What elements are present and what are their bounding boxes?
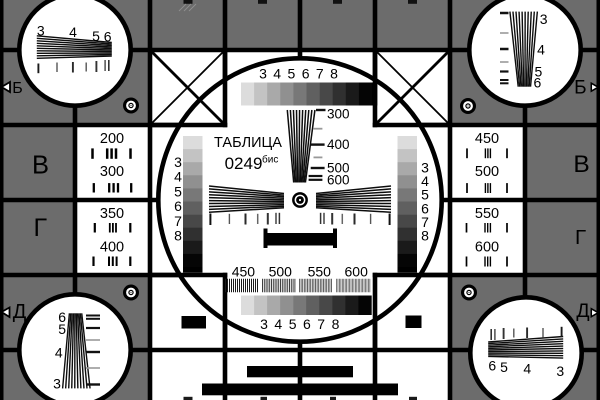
- svg-text:В: В: [573, 151, 589, 178]
- svg-text:550: 550: [308, 264, 332, 280]
- svg-text:7: 7: [174, 213, 182, 229]
- svg-text:4: 4: [55, 344, 63, 360]
- svg-text:6: 6: [534, 75, 542, 91]
- svg-text:3: 3: [53, 376, 61, 392]
- svg-text:Г: Г: [575, 226, 586, 249]
- svg-text:6: 6: [488, 358, 496, 374]
- svg-text:600: 600: [345, 264, 369, 280]
- svg-text:5: 5: [58, 321, 66, 337]
- svg-text:8: 8: [421, 228, 429, 244]
- svg-text:Д: Д: [13, 301, 27, 323]
- svg-text:450: 450: [475, 131, 499, 147]
- svg-text:3: 3: [556, 363, 564, 379]
- svg-text:5: 5: [500, 359, 508, 375]
- svg-text:Д: Д: [576, 300, 589, 322]
- svg-text:0249: 0249: [225, 154, 263, 173]
- svg-text:600: 600: [475, 240, 499, 256]
- svg-text:350: 350: [100, 206, 124, 222]
- svg-text:5: 5: [174, 183, 182, 199]
- svg-text:400: 400: [100, 240, 124, 256]
- svg-text:8: 8: [332, 316, 340, 332]
- svg-text:4: 4: [274, 316, 282, 332]
- svg-text:450: 450: [232, 264, 256, 280]
- svg-text:8: 8: [330, 66, 338, 82]
- svg-text:550: 550: [475, 206, 499, 222]
- svg-text:4: 4: [537, 42, 545, 58]
- svg-text:3: 3: [260, 316, 268, 332]
- svg-text:6: 6: [104, 29, 112, 45]
- svg-text:400: 400: [327, 137, 350, 152]
- svg-text:5: 5: [289, 316, 297, 332]
- svg-text:ТАБЛИЦА: ТАБЛИЦА: [214, 135, 282, 151]
- svg-text:6: 6: [303, 316, 311, 332]
- svg-text:В: В: [32, 152, 49, 180]
- svg-text:6: 6: [302, 66, 310, 82]
- svg-text:8: 8: [174, 228, 182, 244]
- svg-text:4: 4: [174, 169, 182, 185]
- svg-text:500: 500: [269, 264, 293, 280]
- svg-text:300: 300: [327, 107, 350, 122]
- svg-text:3: 3: [174, 154, 182, 170]
- svg-text:5: 5: [288, 66, 296, 82]
- svg-text:4: 4: [273, 66, 281, 82]
- svg-text:4: 4: [69, 24, 77, 40]
- svg-text:300: 300: [100, 164, 124, 180]
- svg-text:7: 7: [316, 66, 324, 82]
- svg-text:7: 7: [317, 316, 325, 332]
- svg-text:5: 5: [92, 28, 100, 44]
- svg-text:600: 600: [327, 173, 350, 188]
- svg-text:бис: бис: [262, 154, 278, 166]
- svg-text:6: 6: [174, 198, 182, 214]
- svg-text:4: 4: [523, 361, 531, 377]
- svg-text:3: 3: [540, 11, 548, 27]
- svg-text:Б: Б: [12, 80, 23, 97]
- svg-text:Б: Б: [574, 78, 586, 99]
- svg-text:200: 200: [100, 131, 124, 147]
- svg-text:3: 3: [37, 22, 45, 38]
- svg-text:Г: Г: [34, 214, 48, 242]
- svg-text:500: 500: [475, 164, 499, 180]
- svg-text:3: 3: [259, 66, 267, 82]
